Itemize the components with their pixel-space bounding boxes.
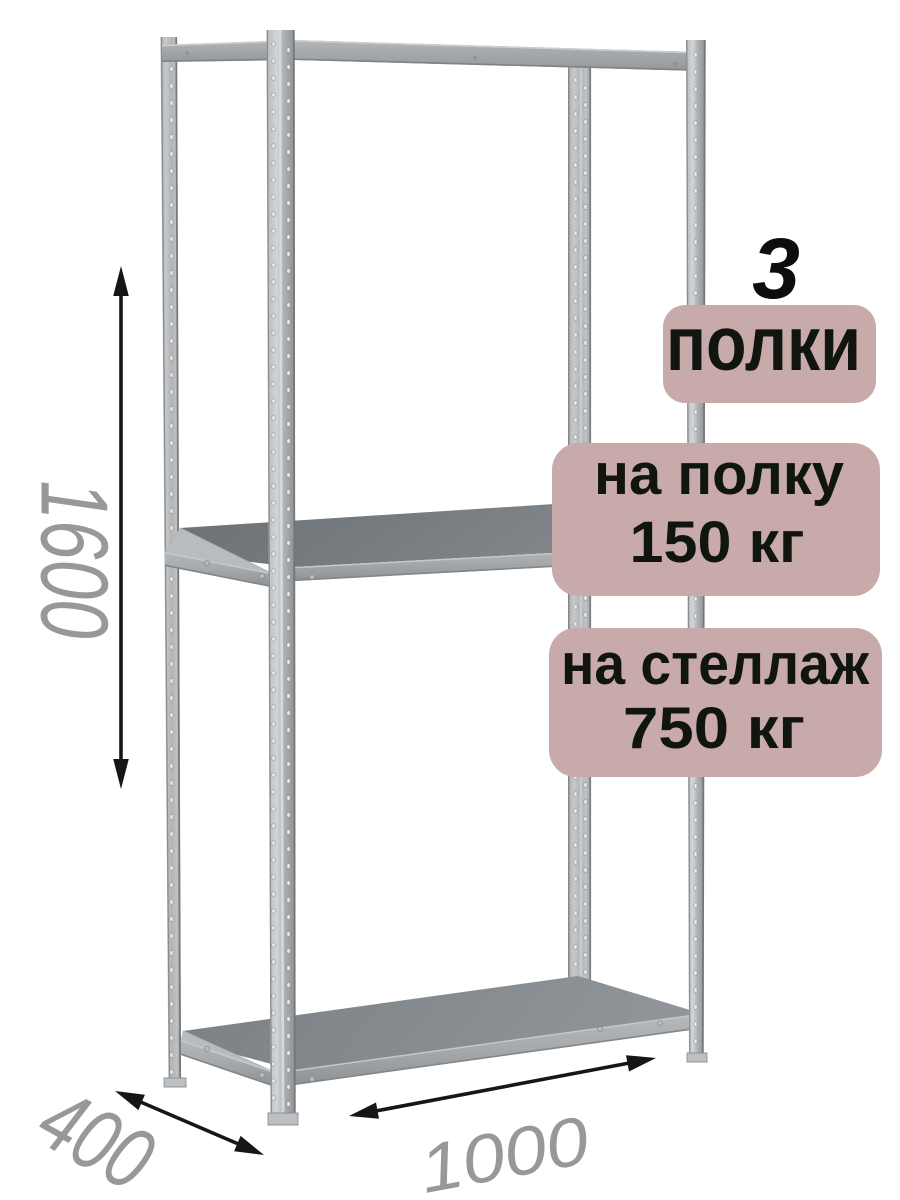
svg-text:1600: 1600 — [21, 481, 128, 639]
svg-text:на полку: на полку — [594, 442, 844, 507]
svg-text:на стеллаж: на стеллаж — [561, 632, 870, 697]
svg-text:750 кг: 750 кг — [623, 696, 805, 761]
svg-text:150 кг: 150 кг — [630, 510, 805, 575]
svg-text:3: 3 — [752, 221, 800, 317]
